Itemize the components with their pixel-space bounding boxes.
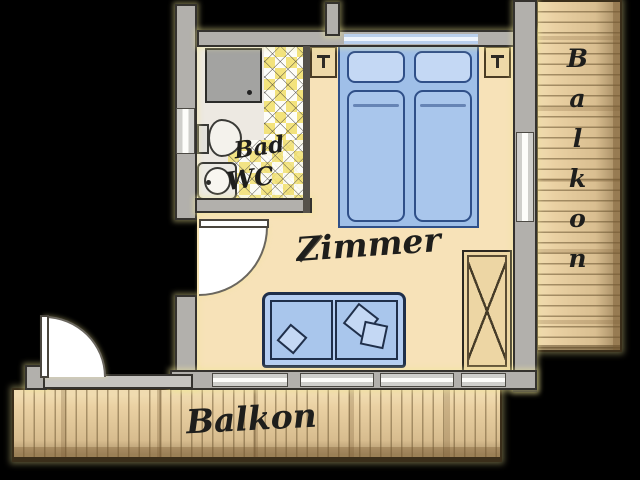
bedroom-label: Zimmer xyxy=(295,223,442,266)
window-north xyxy=(344,34,478,44)
wardrobe xyxy=(462,250,512,372)
bathroom-wall-east xyxy=(303,46,310,213)
bathroom-label-bad: Bad xyxy=(233,133,286,163)
balcony-south-label: Balkon xyxy=(185,399,317,439)
bed-pillow-left xyxy=(347,51,405,83)
bed-mattress-left xyxy=(347,90,405,222)
balcony-door-swing-icon xyxy=(44,316,106,377)
sink-drain-icon xyxy=(206,180,211,185)
window-bathroom xyxy=(176,108,195,154)
window-south-3 xyxy=(380,373,454,387)
bed-mattress-right xyxy=(414,90,472,222)
bed-pillow-right xyxy=(414,51,472,83)
window-east xyxy=(516,132,534,222)
bathroom-wall-south xyxy=(195,198,312,213)
shower-icon xyxy=(205,48,262,103)
floor-plan: Balkon Balkon Bad WC Zi xyxy=(0,0,640,480)
bathroom-label-wc: WC xyxy=(224,163,275,194)
balcony-door-leaf-icon xyxy=(40,315,49,378)
nightstand-left xyxy=(310,46,337,78)
nightstand-right xyxy=(484,46,511,78)
window-south-4 xyxy=(461,373,506,387)
entry-door-leaf-icon xyxy=(199,219,269,228)
sofa-cushion-left xyxy=(270,300,333,360)
window-south-1 xyxy=(212,373,288,387)
shower-drain-icon xyxy=(247,90,252,95)
sofa-pillow xyxy=(360,321,388,349)
balcony-east-label: Balkon xyxy=(550,44,590,344)
wall-post xyxy=(325,2,340,36)
window-south-2 xyxy=(300,373,374,387)
